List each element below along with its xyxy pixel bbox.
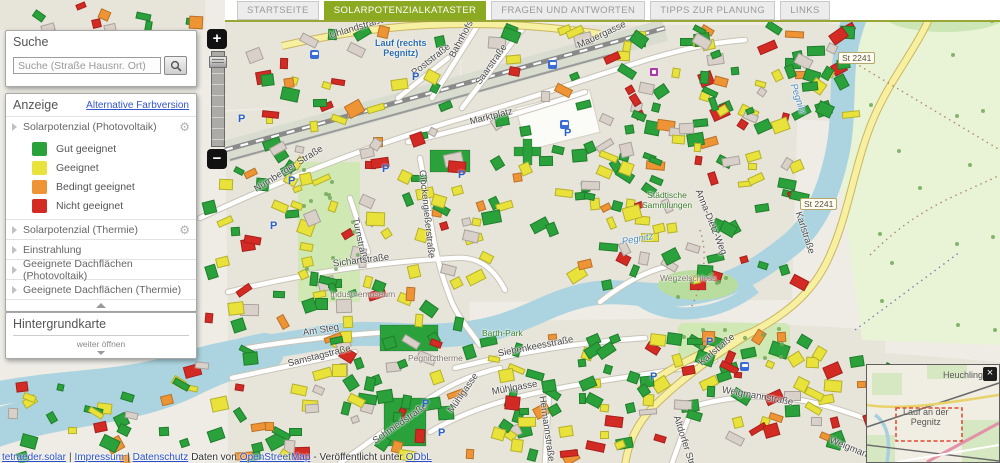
layer-section-dachflaechen-thermie[interactable]: Geeignete Dachflächen (Thermie) bbox=[6, 279, 196, 299]
attribution-link[interactable]: Datenschutz bbox=[133, 452, 189, 463]
attribution-text: | bbox=[69, 452, 72, 463]
chevron-right-icon bbox=[12, 286, 17, 294]
legend-color-good bbox=[32, 142, 47, 156]
legend-row-conditional: Bedingt geeignet bbox=[32, 177, 196, 196]
legend-row-good: Gut geeignet bbox=[32, 139, 196, 158]
layer-section-label: Einstrahlung bbox=[23, 244, 81, 256]
layer-section-label: Geeignete Dachflächen (Photovoltaik) bbox=[23, 258, 190, 282]
search-button[interactable] bbox=[164, 56, 187, 75]
layer-section-thermie[interactable]: Solarpotenzial (Thermie) ⚙ bbox=[6, 219, 196, 239]
layer-section-label: Geeignete Dachflächen (Thermie) bbox=[23, 284, 181, 296]
divider bbox=[13, 335, 189, 336]
attribution: tetraeder.solar|Impressum|DatenschutzDat… bbox=[2, 452, 435, 463]
panel-collapse-button[interactable] bbox=[6, 299, 196, 311]
expand-hint[interactable]: weiter öffnen bbox=[6, 339, 196, 349]
attribution-link[interactable]: Impressum bbox=[75, 452, 124, 463]
top-navigation: STARTSEITE SOLARPOTENZIALKATASTER FRAGEN… bbox=[225, 0, 1000, 22]
search-icon bbox=[170, 60, 182, 72]
layer-section-label: Solarpotenzial (Thermie) bbox=[23, 224, 138, 236]
tab-links[interactable]: LINKS bbox=[780, 1, 829, 20]
tab-solarpotenzialkataster[interactable]: SOLARPOTENZIALKATASTER bbox=[324, 1, 487, 20]
search-panel-title: Suche bbox=[6, 31, 196, 51]
layer-section-einstrahlung[interactable]: Einstrahlung bbox=[6, 239, 196, 259]
zoom-in-button[interactable]: + bbox=[207, 29, 227, 49]
overview-minimap[interactable]: × HeuchlingLauf an der Pegnitz bbox=[866, 364, 1000, 463]
background-panel-title: Hintergrundkarte bbox=[6, 313, 196, 333]
zoom-out-button[interactable]: − bbox=[207, 149, 227, 169]
tab-tipps-zur-planung[interactable]: TIPPS ZUR PLANUNG bbox=[650, 1, 775, 20]
collapse-arrow-icon bbox=[96, 303, 106, 308]
gear-icon[interactable]: ⚙ bbox=[179, 224, 190, 236]
chevron-right-icon bbox=[12, 266, 17, 274]
attribution-text: - Veröffentlicht unter bbox=[313, 452, 402, 463]
minimap-place-label: Lauf an der Pegnitz bbox=[903, 407, 949, 427]
minimap-close-button[interactable]: × bbox=[983, 367, 997, 381]
chevron-right-icon bbox=[12, 246, 17, 254]
attribution-link[interactable]: OpenStreetMap bbox=[240, 452, 311, 463]
layer-section-dachflaechen-pv[interactable]: Geeignete Dachflächen (Photovoltaik) bbox=[6, 259, 196, 279]
gear-icon[interactable]: ⚙ bbox=[179, 121, 190, 133]
layer-section-label: Solarpotenzial (Photovoltaik) bbox=[23, 121, 157, 133]
chevron-right-icon bbox=[12, 123, 17, 131]
legend-color-suitable bbox=[32, 161, 47, 175]
legend-color-conditional bbox=[32, 180, 47, 194]
chevron-right-icon bbox=[12, 226, 17, 234]
minimap-place-label: Heuchling bbox=[943, 370, 983, 380]
tab-startseite[interactable]: STARTSEITE bbox=[237, 1, 319, 20]
attribution-text: | bbox=[127, 452, 130, 463]
layer-display-panel: Anzeige Alternative Farbversion Solarpot… bbox=[5, 93, 197, 312]
attribution-link[interactable]: tetraeder.solar bbox=[2, 452, 66, 463]
attribution-text: Daten von bbox=[191, 452, 237, 463]
solar-cadastre-app: UhlandstraßeLauf (rechts Pegnitz)Poststr… bbox=[0, 0, 1000, 463]
display-panel-title: Anzeige bbox=[13, 98, 58, 112]
alternative-color-link[interactable]: Alternative Farbversion bbox=[86, 100, 189, 111]
search-panel: Suche bbox=[5, 30, 197, 87]
tab-fragen-und-antworten[interactable]: FRAGEN UND ANTWORTEN bbox=[491, 1, 645, 20]
pv-legend: Gut geeignet Geeignet Bedingt geeignet N… bbox=[6, 136, 196, 219]
layer-section-photovoltaik[interactable]: Solarpotenzial (Photovoltaik) ⚙ bbox=[6, 116, 196, 136]
chevron-down-icon bbox=[97, 351, 105, 355]
search-input[interactable] bbox=[13, 57, 161, 74]
zoom-slider-handle[interactable] bbox=[209, 56, 227, 68]
legend-row-unsuitable: Nicht geeignet bbox=[32, 196, 196, 215]
zoom-slider-track[interactable] bbox=[211, 51, 225, 147]
legend-color-unsuitable bbox=[32, 199, 47, 213]
zoom-control: + − bbox=[207, 29, 231, 169]
attribution-link[interactable]: ODbL bbox=[406, 452, 432, 463]
background-map-panel: Hintergrundkarte weiter öffnen bbox=[5, 312, 197, 359]
legend-row-suitable: Geeignet bbox=[32, 158, 196, 177]
